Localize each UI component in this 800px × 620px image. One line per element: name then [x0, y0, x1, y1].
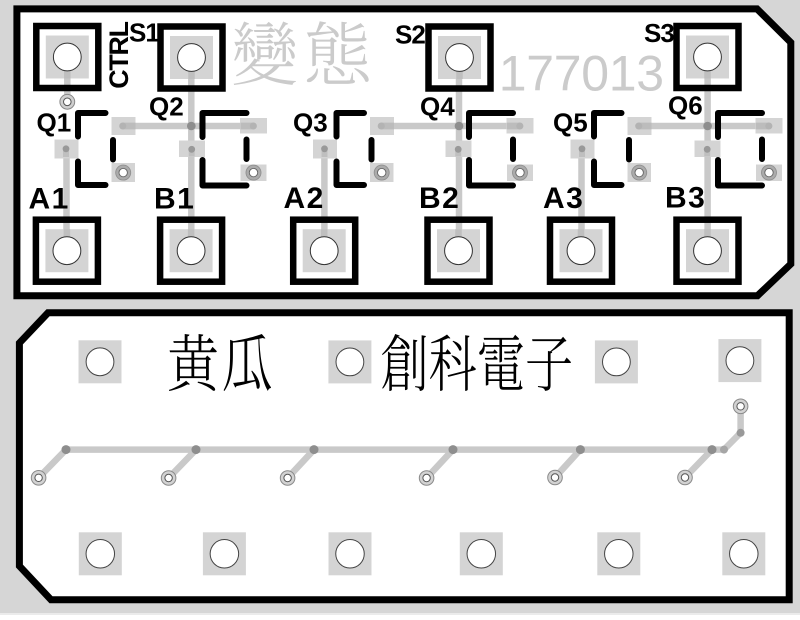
svg-text:Q2: Q2	[149, 92, 184, 122]
svg-text:Q1: Q1	[37, 108, 72, 138]
svg-text:Q5: Q5	[553, 108, 588, 138]
svg-text:A3: A3	[543, 182, 584, 215]
svg-text:Q4: Q4	[420, 92, 455, 122]
svg-text:B1: B1	[154, 183, 195, 216]
svg-text:177013: 177013	[499, 46, 664, 102]
svg-text:B2: B2	[419, 182, 460, 215]
svg-text:A2: A2	[284, 182, 325, 215]
svg-text:Q3: Q3	[293, 108, 328, 138]
svg-text:S2: S2	[395, 20, 425, 50]
svg-text:B3: B3	[665, 182, 706, 215]
svg-text:A1: A1	[29, 183, 70, 216]
svg-text:Q6: Q6	[668, 91, 703, 121]
svg-text:S1: S1	[129, 18, 159, 48]
svg-text:S3: S3	[644, 18, 674, 48]
